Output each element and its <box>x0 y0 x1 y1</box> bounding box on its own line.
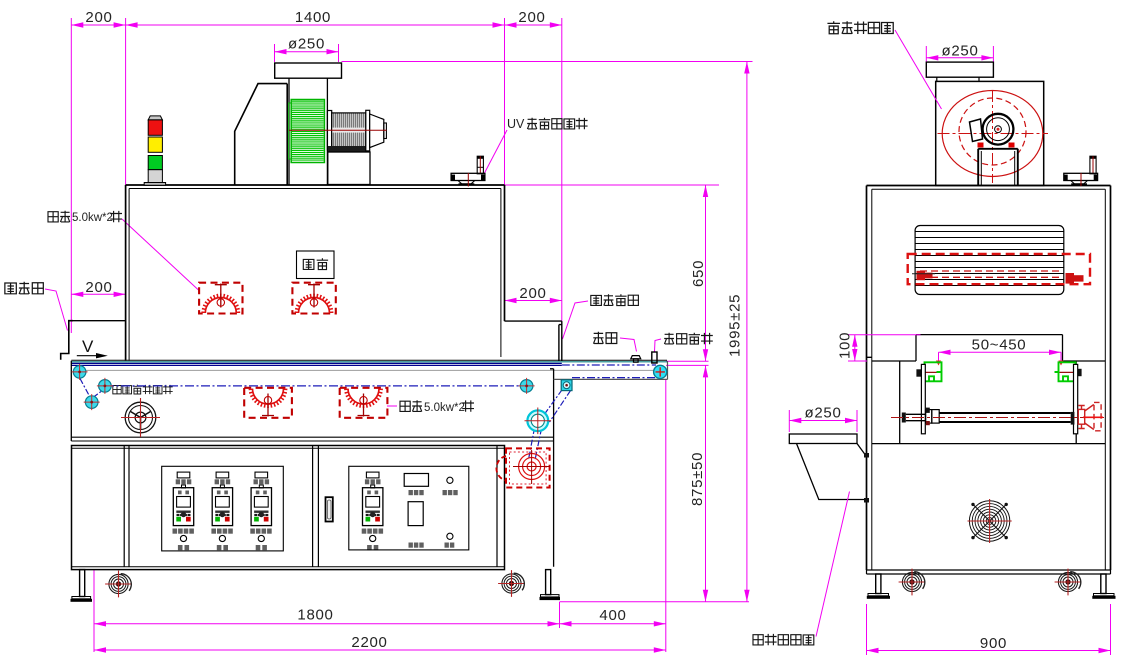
svg-text:50~450: 50~450 <box>972 337 1027 354</box>
svg-text:875±50: 875±50 <box>689 452 706 506</box>
svg-text:UV: UV <box>507 117 525 131</box>
svg-text:ø250: ø250 <box>288 36 325 53</box>
svg-text:1400: 1400 <box>295 9 331 26</box>
svg-text:100: 100 <box>837 332 854 359</box>
svg-text:5.0kw*2: 5.0kw*2 <box>72 212 113 224</box>
svg-text:V: V <box>82 337 94 356</box>
svg-text:5.0kw*2: 5.0kw*2 <box>424 402 465 414</box>
svg-text:200: 200 <box>518 9 545 26</box>
svg-text:650: 650 <box>690 260 707 287</box>
svg-text:400: 400 <box>599 607 626 624</box>
svg-text:900: 900 <box>980 635 1007 652</box>
svg-text:ø250: ø250 <box>942 43 979 60</box>
svg-text:200: 200 <box>85 279 112 296</box>
svg-text:200: 200 <box>519 285 546 302</box>
svg-text:1995±25: 1995±25 <box>727 294 744 357</box>
svg-text:2200: 2200 <box>351 634 387 651</box>
svg-text:1800: 1800 <box>297 607 333 624</box>
svg-text:200: 200 <box>85 9 112 26</box>
svg-text:ø250: ø250 <box>805 405 842 422</box>
